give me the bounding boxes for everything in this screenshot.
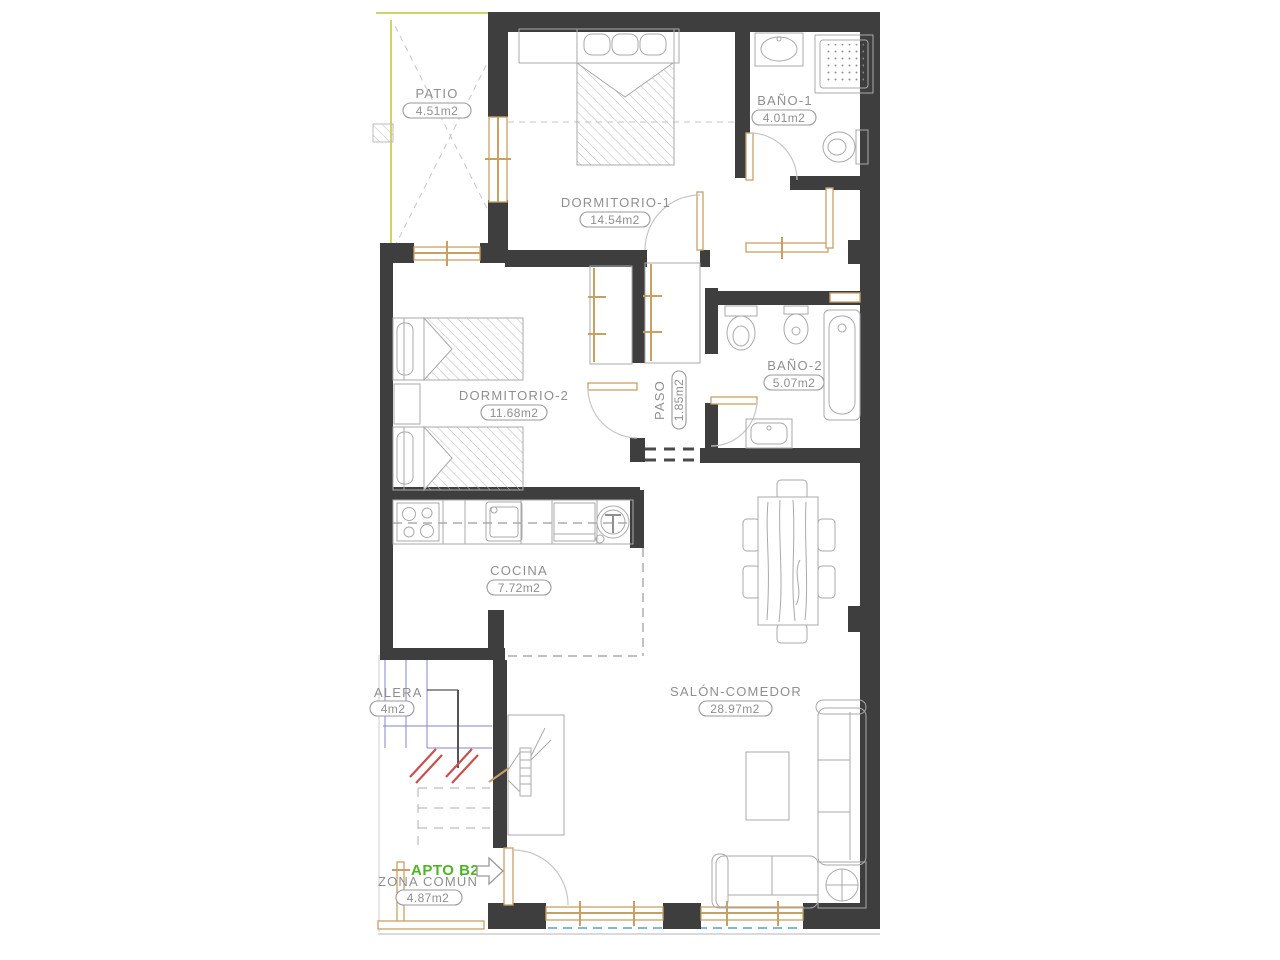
bed-double — [519, 29, 679, 165]
room-name: PASO — [652, 380, 667, 420]
room-area: 14.54m2 — [590, 213, 640, 227]
door-dorm2 — [588, 383, 637, 438]
chair — [777, 624, 807, 643]
room-name: BAÑO-2 — [767, 358, 823, 373]
room-area: 4.01m2 — [763, 111, 805, 125]
room-area: 11.68m2 — [490, 406, 539, 420]
room-name: DORMITORIO-1 — [561, 195, 671, 210]
room-area: 5.07m2 — [773, 376, 815, 390]
room-label-paso: PASO 1.85m2 — [652, 371, 686, 429]
room-label-bano-2: BAÑO-2 5.07m2 — [764, 358, 824, 390]
room-name: SALÓN-COMEDOR — [670, 684, 802, 699]
sofa-armrest — [816, 700, 866, 714]
sofa-horizontal — [716, 856, 818, 908]
wardrobe-dorm2 — [588, 266, 632, 364]
twin-beds — [393, 263, 700, 490]
patio-boundary-lines — [373, 13, 506, 249]
room-label-cocina: COCINA 7.72m2 — [487, 563, 551, 595]
chair — [777, 480, 807, 499]
bathtub-icon — [824, 310, 860, 420]
window-patio-dorm1 — [485, 117, 511, 202]
room-label-dormitorio-2: DORMITORIO-2 11.68m2 — [459, 388, 569, 420]
room-label-bano-1: BAÑO-1 4.01m2 — [752, 93, 816, 125]
sofa-armrest — [712, 854, 728, 908]
washbasin-icon — [746, 419, 792, 448]
room-area: 4m2 — [381, 702, 406, 716]
bed-single-2 — [393, 427, 523, 490]
washbasin-icon — [755, 33, 803, 66]
apartment-label: APTO B2 — [411, 862, 479, 879]
bidet-icon — [784, 306, 808, 344]
room-name: PATIO — [415, 86, 458, 101]
nightstand — [394, 384, 420, 424]
room-area: 1.85m2 — [672, 379, 686, 421]
floor-plan-page: PATIO 4.51m2 DORMITORIO-1 14.54m2 BAÑO-1… — [0, 0, 1280, 960]
room-label-patio: PATIO 4.51m2 — [403, 86, 471, 118]
room-label-escalera-clipped: ALERA 4m2 — [370, 685, 423, 716]
wardrobe-paso — [643, 263, 700, 363]
room-label-dormitorio-1: DORMITORIO-1 14.54m2 — [561, 195, 671, 227]
dining-set — [743, 480, 835, 643]
kitchen-fixtures — [393, 500, 633, 544]
room-area: 4.51m2 — [416, 104, 458, 118]
bed-single-1 — [393, 318, 523, 380]
room-name: BAÑO-1 — [757, 93, 813, 108]
coffee-table — [746, 752, 789, 820]
door-entrance — [504, 848, 568, 905]
sofa-vertical — [818, 708, 866, 865]
room-area: 28.97m2 — [710, 702, 760, 716]
sink-icon — [486, 502, 522, 541]
hall-closet-front — [746, 188, 833, 259]
section-break-marks — [410, 749, 478, 783]
corner-table — [818, 862, 866, 908]
tv-unit — [508, 715, 564, 835]
room-area: 4.87m2 — [407, 891, 449, 905]
room-name: ALERA — [374, 685, 423, 700]
window-salon-left — [546, 901, 663, 926]
room-label-salon-comedor: SALÓN-COMEDOR 28.97m2 — [670, 684, 802, 716]
window-patio-bottom — [414, 241, 480, 266]
chair — [743, 566, 760, 598]
washer-icon — [596, 506, 629, 543]
floor-plan-drawing: PATIO 4.51m2 DORMITORIO-1 14.54m2 BAÑO-1… — [0, 0, 1280, 960]
dishwasher-icon — [554, 503, 595, 541]
chair — [818, 566, 835, 598]
chair — [743, 519, 760, 551]
chair — [818, 519, 835, 551]
door-bath1 — [746, 133, 797, 180]
window-salon-right — [701, 901, 803, 926]
entrance-arrow-icon — [477, 858, 503, 884]
patio-vent-hatch — [373, 124, 393, 142]
room-name: DORMITORIO-2 — [459, 388, 569, 403]
toilet-icon — [725, 306, 757, 350]
room-area: 7.72m2 — [498, 581, 540, 595]
bath2-shelf — [830, 293, 860, 302]
stove-icon — [397, 503, 439, 541]
room-name: COCINA — [490, 563, 548, 578]
